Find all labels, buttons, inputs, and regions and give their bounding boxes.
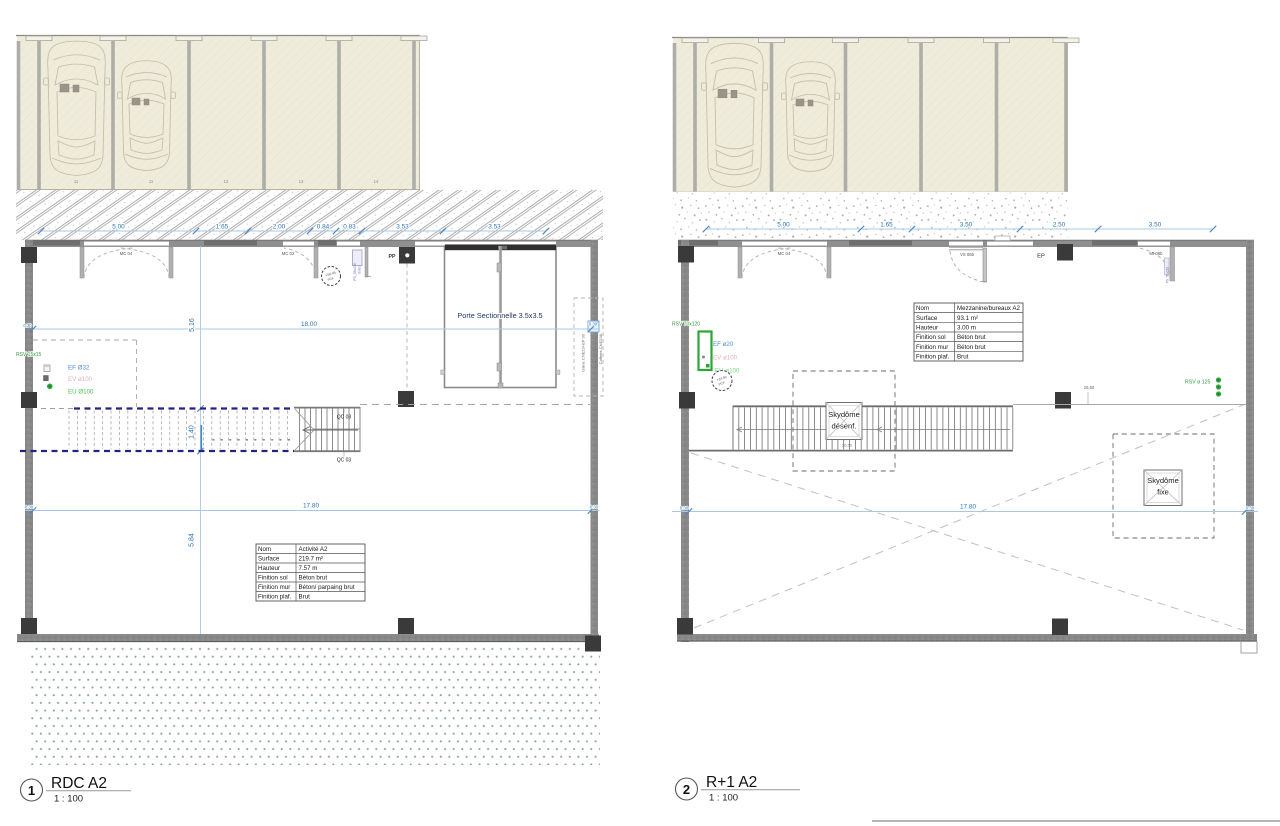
svg-text:26,50: 26,50 <box>842 443 853 448</box>
svg-text:14: 14 <box>374 179 379 184</box>
svg-text:Béton/ parpaing brut: Béton/ parpaing brut <box>299 584 355 591</box>
svg-text:RSV 15x15: RSV 15x15 <box>16 352 42 358</box>
svg-text:RDC A2: RDC A2 <box>51 775 107 792</box>
svg-text:Finition sol: Finition sol <box>916 334 946 341</box>
svg-text:7.57 m: 7.57 m <box>299 565 318 572</box>
svg-text:Béton brut: Béton brut <box>957 344 986 351</box>
svg-text:Porte Sectionnelle 3.5x3.5: Porte Sectionnelle 3.5x3.5 <box>457 311 542 320</box>
svg-text:désenf.: désenf. <box>832 422 857 431</box>
svg-text:PS_59x216: PS_59x216 <box>353 263 357 281</box>
svg-text:Béton brut: Béton brut <box>299 575 328 582</box>
svg-text:Finition mur: Finition mur <box>916 344 948 351</box>
svg-text:0.30: 0.30 <box>25 505 34 510</box>
svg-text:Coffrets CNE23A: Coffrets CNE23A <box>598 333 603 364</box>
svg-text:2.00: 2.00 <box>273 224 286 231</box>
svg-text:13: 13 <box>299 179 304 184</box>
svg-text:5.84: 5.84 <box>189 533 196 547</box>
svg-text:Activité A2: Activité A2 <box>299 546 328 553</box>
svg-text:Gaine CNE23+EP 30: Gaine CNE23+EP 30 <box>581 333 586 372</box>
svg-text:Brut: Brut <box>957 354 969 361</box>
svg-text:RSV 70x120: RSV 70x120 <box>672 322 700 328</box>
svg-text:EV ø100: EV ø100 <box>68 376 93 383</box>
svg-text:EF Ø32: EF Ø32 <box>68 365 90 372</box>
svg-text:3.53: 3.53 <box>488 224 501 231</box>
svg-text:EU Ø100: EU Ø100 <box>68 389 94 396</box>
svg-text:3.50: 3.50 <box>960 222 973 229</box>
svg-text:3.00 m: 3.00 m <box>957 325 976 332</box>
svg-text:EV ø100: EV ø100 <box>713 355 738 362</box>
svg-text:Nom: Nom <box>258 546 271 553</box>
svg-text:Finition plaf.: Finition plaf. <box>916 354 950 361</box>
svg-text:PS_59x216: PS_59x216 <box>1166 267 1170 284</box>
svg-text:93.1 m²: 93.1 m² <box>957 315 978 322</box>
svg-text:Mezzanine/bureaux A2: Mezzanine/bureaux A2 <box>957 305 1021 312</box>
svg-text:R+1 A2: R+1 A2 <box>706 774 757 791</box>
svg-text:Finition sol: Finition sol <box>258 575 288 582</box>
svg-text:1 : 100: 1 : 100 <box>54 794 83 805</box>
svg-text:0.83: 0.83 <box>343 224 356 231</box>
svg-text:MC 04: MC 04 <box>120 251 133 256</box>
svg-text:Hauteur: Hauteur <box>916 325 938 332</box>
svg-text:0.30: 0.30 <box>23 323 32 328</box>
svg-text:0.84: 0.84 <box>317 224 330 231</box>
svg-text:3.50: 3.50 <box>1149 222 1162 229</box>
svg-text:219.7 m²: 219.7 m² <box>299 556 323 563</box>
svg-text:Nom: Nom <box>916 305 929 312</box>
svg-text:1.65: 1.65 <box>216 224 229 231</box>
svg-text:11: 11 <box>149 179 154 184</box>
svg-text:Béton brut: Béton brut <box>957 334 986 341</box>
svg-text:2: 2 <box>683 782 690 797</box>
svg-text:Brut: Brut <box>299 594 311 601</box>
svg-text:QC 03: QC 03 <box>337 415 352 421</box>
svg-text:Soleo: Soleo <box>358 266 362 274</box>
svg-text:Hauteur: Hauteur <box>258 565 280 572</box>
svg-text:Surface: Surface <box>916 315 938 322</box>
svg-text:12: 12 <box>224 179 229 184</box>
svg-text:MI 06b: MI 06b <box>1149 251 1163 256</box>
svg-text:0.30: 0.30 <box>680 506 689 511</box>
svg-text:EP: EP <box>1037 254 1045 260</box>
svg-text:MC 02: MC 02 <box>282 251 295 256</box>
svg-text:fixe: fixe <box>1157 488 1169 497</box>
svg-text:3.53: 3.53 <box>396 224 409 231</box>
svg-text:1.65: 1.65 <box>880 222 893 229</box>
svg-text:VS 06b: VS 06b <box>960 252 975 257</box>
svg-text:EF ø20: EF ø20 <box>713 341 734 348</box>
svg-text:1: 1 <box>28 783 35 798</box>
svg-text:5.00: 5.00 <box>112 224 125 231</box>
svg-text:RSV ø 125: RSV ø 125 <box>1185 380 1210 386</box>
svg-text:1 : 100: 1 : 100 <box>709 793 738 804</box>
svg-text:5.16: 5.16 <box>189 318 196 332</box>
svg-text:1.40: 1.40 <box>189 425 196 439</box>
svg-text:0.30: 0.30 <box>590 505 599 510</box>
svg-text:Finition plaf.: Finition plaf. <box>258 594 292 601</box>
svg-text:Skydôme: Skydôme <box>828 410 860 419</box>
svg-text:17.80: 17.80 <box>303 503 319 510</box>
svg-text:QC 03: QC 03 <box>337 458 352 464</box>
svg-text:26,50: 26,50 <box>1084 385 1095 390</box>
svg-text:0.30: 0.30 <box>1246 506 1255 511</box>
svg-text:2.50: 2.50 <box>1053 222 1066 229</box>
svg-text:Finition mur: Finition mur <box>258 584 290 591</box>
svg-text:Skydôme: Skydôme <box>1147 476 1179 485</box>
svg-text:11: 11 <box>74 179 79 184</box>
svg-text:17.80: 17.80 <box>960 504 976 511</box>
svg-text:Surface: Surface <box>258 556 280 563</box>
svg-text:0.30: 0.30 <box>589 322 598 327</box>
svg-text:MC 04: MC 04 <box>778 251 791 256</box>
svg-text:PP: PP <box>389 254 396 260</box>
svg-text:5.00: 5.00 <box>777 222 790 229</box>
svg-text:18.00: 18.00 <box>301 321 317 328</box>
